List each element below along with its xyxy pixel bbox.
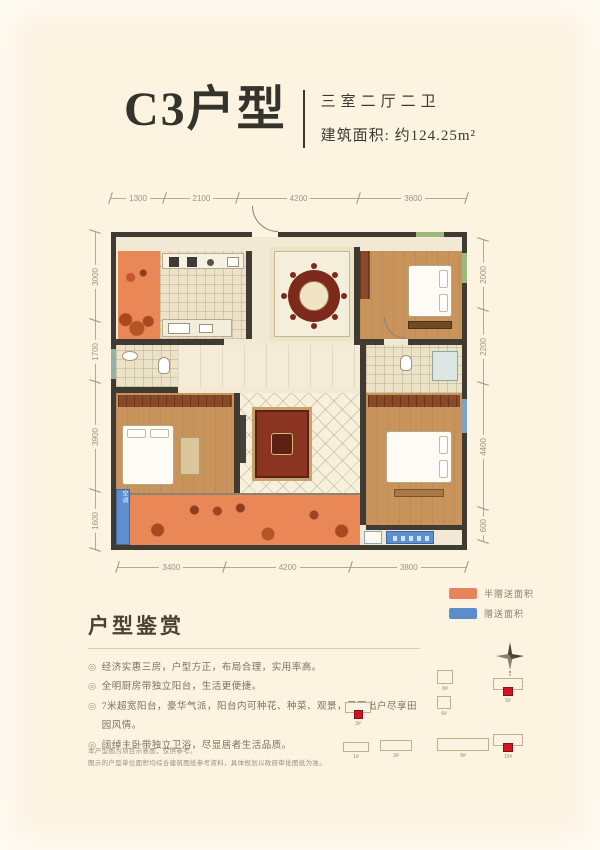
list-item-text: 全明厨房带独立阳台，生活更便捷。 [102, 678, 262, 697]
entry-door-arc [252, 206, 278, 232]
dim-label: 600 [479, 516, 488, 535]
bathroom-right [366, 345, 462, 393]
pillow [150, 429, 169, 438]
dining-room [270, 247, 354, 341]
unit-title: C3户型 [124, 84, 287, 137]
window [111, 349, 116, 379]
wardrobe [368, 395, 460, 407]
dim-label: 4400 [479, 435, 488, 459]
bed [122, 425, 174, 485]
bullet-icon: ◎ [88, 678, 97, 697]
stove-icon [187, 257, 197, 267]
highlighted-unit [503, 687, 513, 696]
dim-label: 3600 [401, 194, 425, 203]
window [416, 232, 444, 237]
floorplan-poster: C3户型 三室二厅二卫 建筑面积: 约124.25m² 1300 2100 42… [0, 0, 600, 850]
building-label: 9# [438, 753, 488, 759]
dimension-chain-left: 3000 1700 3900 1600 [88, 232, 102, 550]
disclaimer: 本户型图为项目示意图，仅供参考。 图示的户型单位面积均综合建筑图纸参考资料，具体… [88, 746, 326, 771]
toilet-icon [400, 355, 412, 371]
stove-icon [169, 257, 179, 267]
toilet-icon [158, 357, 170, 374]
compass-icon [495, 642, 525, 676]
gift-area-bottom-right [386, 531, 434, 544]
living-rug [252, 407, 312, 481]
wall [246, 251, 252, 339]
building-label: 10# [494, 754, 522, 760]
header-right: 三室二厅二卫 建筑面积: 约124.25m² [321, 84, 476, 145]
dim-label: 1300 [126, 194, 150, 203]
corridor [178, 345, 360, 387]
building-outline: 6# [437, 696, 451, 709]
building-outline: 9# [437, 738, 489, 751]
building-label: 1# [344, 754, 368, 760]
wall [366, 525, 462, 530]
kitchen-sink-counter [162, 319, 232, 337]
dim-label: 3400 [159, 563, 183, 572]
dim-label: 1700 [91, 340, 100, 364]
building-outline: 1# [343, 742, 369, 752]
kitchen-appliance-counter [162, 253, 244, 269]
bench [394, 489, 444, 497]
wave-icon [393, 536, 429, 541]
dim-label: 3000 [91, 265, 100, 289]
building-area: 建筑面积: 约124.25m² [321, 124, 476, 145]
dining-table [288, 270, 340, 322]
building-label: 8# [438, 686, 452, 692]
wardrobe [118, 395, 232, 407]
window [462, 253, 467, 283]
dim-label: 2100 [190, 194, 214, 203]
ac-unit-label: 空调 [117, 490, 129, 504]
wardrobe [360, 251, 370, 299]
washbasin-icon [122, 351, 138, 361]
building-label: 6# [438, 711, 450, 717]
rug [180, 437, 200, 475]
building-outline-highlighted: 10# [493, 734, 523, 746]
floor-plan: 空调 [111, 232, 467, 550]
highlighted-unit [503, 743, 513, 752]
dim-label: 2200 [479, 335, 488, 359]
gift-area-left: 空调 [116, 489, 130, 545]
highlighted-unit [354, 710, 363, 719]
legend-item-gift: 赠送面积 [449, 607, 534, 620]
dimension-chain-bottom: 3400 4200 3800 [118, 560, 467, 574]
entry-door-gap [252, 232, 278, 237]
legend-swatch-orange [449, 588, 477, 599]
dim-label: 3900 [91, 425, 100, 449]
pillow [127, 429, 146, 438]
dining-chairs [311, 293, 317, 299]
dim-label: 4200 [276, 563, 300, 572]
bed [386, 431, 452, 483]
bedroom-bottom-left [116, 393, 234, 493]
building-label: 2# [381, 753, 411, 759]
room-config: 三室二厅二卫 [321, 90, 476, 111]
list-item-text: 经济实惠三房，户型方正，布局合理，实用率高。 [102, 659, 322, 678]
kitchen [160, 251, 246, 339]
bullet-icon: ◎ [88, 698, 97, 737]
building-outline-highlighted: 5# [493, 678, 523, 690]
building-label: 3# [346, 721, 370, 727]
kitchen-cabinet [227, 257, 239, 267]
balcony-bottom [130, 495, 360, 545]
living-room [240, 393, 360, 493]
title-divider [303, 90, 305, 148]
tv-stand [240, 415, 246, 463]
dim-label: 1600 [91, 509, 100, 533]
hob-icon [207, 259, 214, 266]
dim-label: 4200 [287, 194, 311, 203]
building-outline: 8# [437, 670, 453, 684]
pillow [439, 270, 448, 288]
dimension-chain-top: 1300 2100 4200 3600 [111, 191, 467, 205]
balcony-top-left [118, 251, 160, 339]
pillow [439, 460, 448, 478]
legend-item-semi-gift: 半赠送面积 [449, 587, 534, 600]
disclaimer-line: 图示的户型单位面积均综合建筑图纸参考资料，具体规划以政府审批图纸为准。 [88, 758, 326, 770]
nightstand [408, 321, 452, 329]
bed [408, 265, 452, 317]
dim-label: 2000 [479, 263, 488, 287]
sink-icon [168, 323, 190, 334]
shower-icon [432, 351, 458, 381]
legend-label: 赠送面积 [484, 607, 524, 620]
dimension-chain-right: 2000 2200 4400 600 [476, 240, 490, 542]
bedroom-bottom-right [366, 393, 462, 525]
building-outline: 2# [380, 740, 412, 751]
disclaimer-line: 本户型图为项目示意图，仅供参考。 [88, 746, 326, 758]
dim-label: 3800 [397, 563, 421, 572]
ac-platform [364, 531, 382, 544]
pillow [439, 294, 448, 312]
bullet-icon: ◎ [88, 659, 97, 678]
legend: 半赠送面积 赠送面积 [449, 587, 534, 627]
bathroom-left [116, 345, 178, 387]
pillow [439, 436, 448, 454]
legend-label: 半赠送面积 [484, 587, 534, 600]
window [462, 399, 467, 433]
site-plan: 8# 6# 5# 3# 1# 2# 9# 10# [333, 640, 593, 800]
building-label: 5# [494, 698, 522, 704]
sink-icon [199, 324, 213, 333]
header: C3户型 三室二厅二卫 建筑面积: 约124.25m² [0, 84, 600, 148]
rug-medallion [271, 433, 293, 455]
bedroom-top-right [360, 251, 462, 339]
legend-swatch-blue [449, 608, 477, 619]
building-outline-highlighted: 3# [345, 702, 371, 713]
